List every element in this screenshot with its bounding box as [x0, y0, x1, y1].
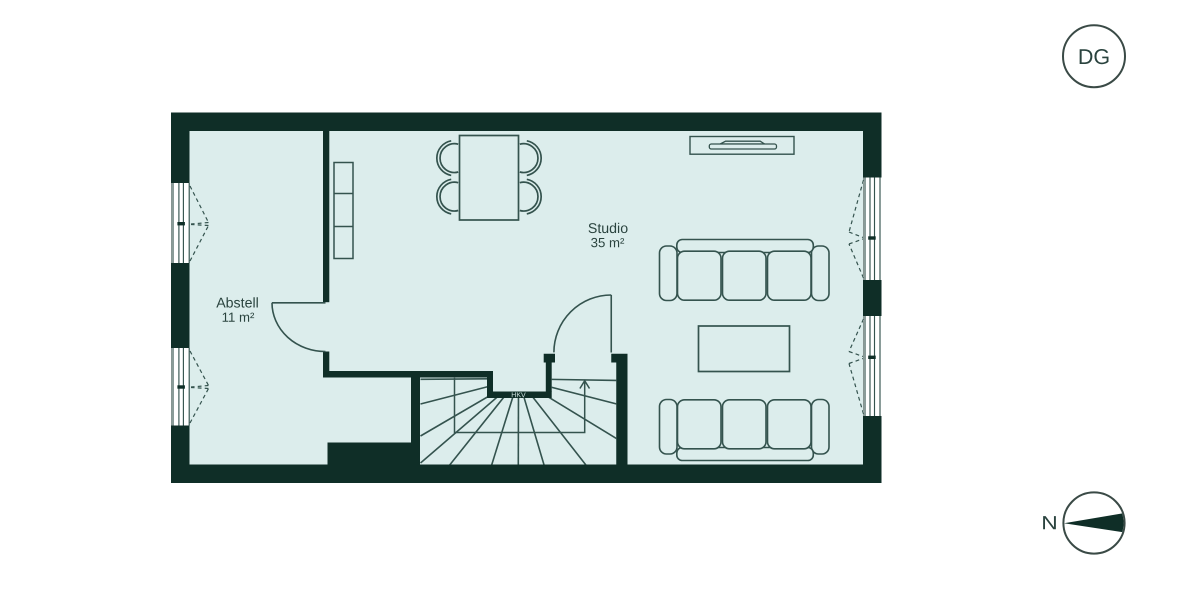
svg-text:35 m²: 35 m² — [591, 235, 625, 250]
svg-text:DG: DG — [1078, 45, 1110, 69]
svg-text:HKV: HKV — [511, 392, 526, 399]
svg-text:N: N — [1041, 513, 1058, 534]
svg-text:11 m²: 11 m² — [222, 310, 255, 325]
